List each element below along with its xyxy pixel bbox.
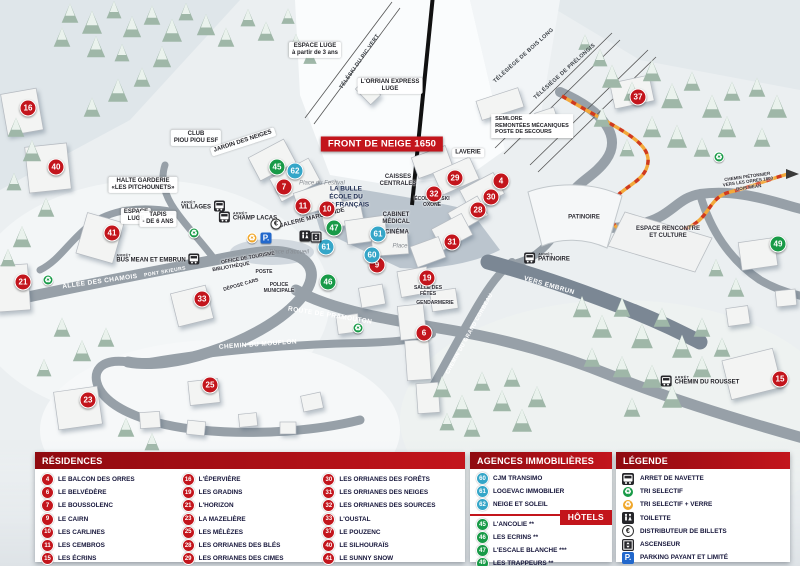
legend-item-label: LE BELVÉDÈRE <box>58 489 107 496</box>
map-marker-40: 40 <box>48 159 65 176</box>
bus-stop-text: ARRÊTPATINOIRE <box>538 253 570 263</box>
map-label: ESPACE LUGE à partir de 3 ans <box>289 42 341 58</box>
map-marker-47: 47 <box>326 220 343 237</box>
map-marker-15: 15 <box>772 371 789 388</box>
panel-agences-hotels: AGENCES IMMOBILIÈRES 60CJM TRANSIMO61LOG… <box>470 452 612 562</box>
recycle-green-icon: ♻ <box>353 323 364 334</box>
bus-stop-chemin-du-rousset: ARRÊTCHEMIN DU ROUSSET <box>661 376 740 387</box>
legend-item-label: LES TRAPPEURS ** <box>493 560 553 566</box>
legend-marker-25: 25 <box>182 526 195 539</box>
legend-item-label: ASCENSEUR <box>640 541 680 548</box>
legend-item: 30LES ORRIANES DES FORÊTS <box>322 473 463 486</box>
legend-marker-28: 28 <box>182 539 195 552</box>
map-label: TÉLÉSIÈGE DE BOIS LONG <box>492 27 555 85</box>
legend-marker-32: 32 <box>322 499 335 512</box>
legend-marker-30: 30 <box>322 473 335 486</box>
map-marker-19: 19 <box>419 270 436 287</box>
resort-map: 1640412133232571110919629323128304371545… <box>0 0 800 566</box>
legend-marker-31: 31 <box>322 486 335 499</box>
legend-marker-7: 7 <box>41 499 54 512</box>
legend-item: €DISTRIBUTEUR DE BILLETS <box>622 525 790 538</box>
map-marker-29: 29 <box>447 170 464 187</box>
bus-stop-bus-mean-et-embrun: ARRÊTBUS MEAN ET EMBRUN <box>116 254 199 265</box>
map-marker-6: 6 <box>416 325 433 342</box>
parking-icon: P. <box>261 233 272 244</box>
legend-item-label: TRI SELECTIF + VERRE <box>640 501 712 508</box>
bus-icon <box>189 254 200 265</box>
legend-marker-61: 61 <box>476 485 489 498</box>
legend-item: ♻TRI SELECTIF <box>622 485 790 498</box>
bus-stop-champ-lacas: ARRÊTCHAMP LACAS <box>219 212 277 223</box>
map-label: CABINET MÉDICAL <box>382 212 409 226</box>
map-label: CLUB PIOU PIOU ESF <box>171 130 221 146</box>
legend-marker-29: 29 <box>182 552 195 565</box>
legend-item-label: LES MÉLÈZES <box>199 529 243 536</box>
bus-icon <box>219 212 230 223</box>
bus-stop-text: ARRÊTBUS MEAN ET EMBRUN <box>116 254 185 264</box>
legend-marker-33: 33 <box>322 513 335 526</box>
bus-icon <box>214 201 225 212</box>
legend-marker-11: 11 <box>41 539 54 552</box>
legend-marker-37: 37 <box>322 526 335 539</box>
legend-item: 41LE SUNNY SNOW <box>322 552 463 565</box>
recycle-yellow-icon: ♻ <box>247 233 258 244</box>
map-label: PATINOIRE <box>568 214 600 221</box>
map-label: TÉLÉSIÈGE DE PRÉLONGIS <box>533 43 597 102</box>
wc-icon <box>622 512 634 524</box>
legend-item: 33L'OUSTAL <box>322 513 463 526</box>
legend-item-label: TRI SELECTIF <box>640 488 683 495</box>
legend-item-label: LE BALCON DES ORRES <box>58 476 135 483</box>
map-label: CHEMIN PIÉTONNIER VERS LES ORRES 1800 BO… <box>722 170 775 193</box>
map-marker-46: 46 <box>320 274 337 291</box>
map-marker-28: 28 <box>470 202 487 219</box>
legend-item: 49LES TRAPPEURS ** <box>476 557 612 566</box>
legend-item-label: DISTRIBUTEUR DE BILLETS <box>640 528 727 535</box>
hotels-divider: HÔTELS <box>470 514 612 516</box>
legend-marker-15: 15 <box>41 552 54 565</box>
legend-item: 6LE BELVÉDÈRE <box>41 486 182 499</box>
legend-item-label: LE SILHOURAÏS <box>339 542 388 549</box>
map-label: HALTE GARDERIE «LES PITCHOUNETS» <box>108 177 177 193</box>
bus-stop-name: PATINOIRE <box>538 257 570 263</box>
map-label: PONT SKIEURS <box>144 265 187 278</box>
legend-marker-47: 47 <box>476 544 489 557</box>
recycle-green-icon: ♻ <box>189 228 200 239</box>
map-label: VERS EMBRUN <box>523 275 576 297</box>
legend-marker-49: 49 <box>476 557 489 566</box>
map-label: POLICE MUNICIPALE <box>264 282 295 294</box>
legend-item: ASCENSEUR <box>622 538 790 551</box>
map-marker-31: 31 <box>444 234 461 251</box>
bus-stop-name: CHEMIN DU ROUSSET <box>675 380 740 386</box>
legend-marker-45: 45 <box>476 518 489 531</box>
legend-item-label: LE POUZENC <box>339 529 380 536</box>
legend-item-label: LES GRADINS <box>199 489 243 496</box>
legend-item: 25LES MÉLÈZES <box>182 526 323 539</box>
map-marker-61: 61 <box>370 226 387 243</box>
map-label: CINÉMA <box>385 229 409 236</box>
bus-stop-text: ARRÊTCHEMIN DU ROUSSET <box>675 376 740 386</box>
bus-icon <box>661 376 672 387</box>
legend-item-label: LOGEVAC IMMOBILIER <box>493 488 564 495</box>
map-label: ESPACE RENCONTRE ET CULTURE <box>636 226 700 240</box>
residences-columns: 4LE BALCON DES ORRES6LE BELVÉDÈRE7LE BOU… <box>35 469 465 565</box>
legend-marker-4: 4 <box>41 473 54 486</box>
legend-item-label: LES ORRIANES DES SOURCES <box>339 502 435 509</box>
map-marker-7: 7 <box>276 179 293 196</box>
map-label: Place <box>392 243 407 250</box>
bus-stop-name: BUS MEAN ET EMBRUN <box>116 258 185 264</box>
recycle-green-icon: ♻ <box>714 152 725 163</box>
legend-item: 29LES ORRIANES DES CIMES <box>182 552 323 565</box>
legend-item: 46LES ECRINS ** <box>476 531 612 544</box>
parking-icon: P. <box>622 552 634 564</box>
legend-item-label: TOILETTE <box>640 515 671 522</box>
map-marker-33: 33 <box>194 291 211 308</box>
legend-item-label: LE SUNNY SNOW <box>339 555 393 562</box>
legend-item-label: L'ÉPERVIÈRE <box>199 476 241 483</box>
map-marker-32: 32 <box>426 186 443 203</box>
legend-item-label: LE BOUSSOLENC <box>58 502 113 509</box>
map-label: L'ORRIAN EXPRESS LUGE <box>358 78 423 94</box>
legend-item-label: PARKING PAYANT ET LIMITÉ <box>640 554 728 561</box>
recycle-yellow-icon: ♻ <box>622 499 634 511</box>
euro-icon: € <box>271 219 282 230</box>
panel-residences-header: RÉSIDENCES <box>35 452 465 469</box>
legend-item: 31LES ORRIANES DES NEIGES <box>322 486 463 499</box>
legend-item-label: L'ANCOLIE ** <box>493 521 534 528</box>
legend-item: 15LES ÉCRINS <box>41 552 182 565</box>
bus-stop-villages: ARRÊTVILLAGES <box>181 201 225 212</box>
map-marker-60: 60 <box>364 247 381 264</box>
legend-marker-62: 62 <box>476 498 489 511</box>
map-marker-62: 62 <box>287 163 304 180</box>
hotels-tab: HÔTELS <box>560 510 612 525</box>
legend-marker-19: 19 <box>182 486 195 499</box>
bus-icon <box>622 473 634 485</box>
legend-item: 40LE SILHOURAÏS <box>322 539 463 552</box>
map-marker-23: 23 <box>80 392 97 409</box>
map-marker-16: 16 <box>20 100 37 117</box>
euro-icon: € <box>622 525 634 537</box>
legend-marker-21: 21 <box>182 499 195 512</box>
legend-item-label: LES ÉCRINS <box>58 555 96 562</box>
map-label: TAPIS - DE 6 ANS <box>139 211 176 227</box>
bus-stop-name: VILLAGES <box>181 205 211 211</box>
legend-item: P.PARKING PAYANT ET LIMITÉ <box>622 551 790 564</box>
legend-item: 19LES GRADINS <box>182 486 323 499</box>
bus-icon <box>524 253 535 264</box>
map-label: DÉPOSE CARS <box>223 277 260 293</box>
legend-item: 32LES ORRIANES DES SOURCES <box>322 499 463 512</box>
legend-item-label: ARRET DE NAVETTE <box>640 475 704 482</box>
legend-item: 47L'ESCALE BLANCHE *** <box>476 544 612 557</box>
elevator-icon <box>311 232 322 243</box>
legend-item-label: L'OUSTAL <box>339 516 370 523</box>
wc-icon <box>300 231 311 242</box>
map-marker-10: 10 <box>319 201 336 218</box>
legend-item-label: LES ORRIANES DES BLÉS <box>199 542 281 549</box>
recycle-green-icon: ♻ <box>622 486 634 498</box>
legend-marker-46: 46 <box>476 531 489 544</box>
map-label: POSTE <box>256 269 273 275</box>
legend-item: 21L'HORIZON <box>182 499 323 512</box>
legend-marker-41: 41 <box>322 552 335 565</box>
legend-item: 7LE BOUSSOLENC <box>41 499 182 512</box>
legend-item-label: CJM TRANSIMO <box>493 475 542 482</box>
legend-marker-9: 9 <box>41 513 54 526</box>
legend-marker-6: 6 <box>41 486 54 499</box>
panel-legende: LÉGENDE ARRET DE NAVETTE♻TRI SELECTIF♻TR… <box>616 452 790 562</box>
legend-item: 10LES CARLINES <box>41 526 182 539</box>
legend-item-label: LES ORRIANES DES FORÊTS <box>339 476 430 483</box>
legend-item: 11LES CEMBROS <box>41 539 182 552</box>
legend-item: 4LE BALCON DES ORRES <box>41 473 182 486</box>
legend-item: 16L'ÉPERVIÈRE <box>182 473 323 486</box>
panel-residences: RÉSIDENCES 4LE BALCON DES ORRES6LE BELVÉ… <box>35 452 465 562</box>
legend-item-label: LES CEMBROS <box>58 542 105 549</box>
map-marker-30: 30 <box>483 189 500 206</box>
map-label: CHEMIN DU MOUFLON <box>219 338 298 351</box>
legend-item-label: LES ORRIANES DES NEIGES <box>339 489 428 496</box>
bus-stop-patinoire: ARRÊTPATINOIRE <box>524 253 570 264</box>
legend-item-label: LA MAZELIÈRE <box>199 516 246 523</box>
legend-item: TOILETTE <box>622 512 790 525</box>
map-marker-41: 41 <box>104 225 121 242</box>
legend-marker-60: 60 <box>476 472 489 485</box>
agences-list: 60CJM TRANSIMO61LOGEVAC IMMOBILIER62NEIG… <box>470 469 612 512</box>
legend-item: ♻TRI SELECTIF + VERRE <box>622 498 790 511</box>
map-label: LAVERIE <box>452 148 484 157</box>
map-marker-37: 37 <box>630 89 647 106</box>
legend-item: 60CJM TRANSIMO <box>476 472 612 485</box>
legend-item-label: LES ORRIANES DES CIMES <box>199 555 284 562</box>
map-label: CAISSES CENTRALES <box>380 174 417 188</box>
legend-marker-16: 16 <box>182 473 195 486</box>
panel-legende-header: LÉGENDE <box>616 452 790 469</box>
map-marker-25: 25 <box>202 377 219 394</box>
legend-marker-10: 10 <box>41 526 54 539</box>
legend-item: 9LE CAIRN <box>41 513 182 526</box>
map-label: GENDARMERIE <box>416 300 454 306</box>
legende-list: ARRET DE NAVETTE♻TRI SELECTIF♻TRI SELECT… <box>616 469 790 564</box>
legend-item: ARRET DE NAVETTE <box>622 472 790 485</box>
residences-column: 30LES ORRIANES DES FORÊTS31LES ORRIANES … <box>322 473 463 565</box>
recycle-green-icon: ♻ <box>43 275 54 286</box>
front-de-neige-banner: FRONT DE NEIGE 1650 <box>321 137 443 152</box>
map-marker-4: 4 <box>493 173 510 190</box>
map-label: SALLE DES FÊTES <box>414 285 442 297</box>
residences-column: 16L'ÉPERVIÈRE19LES GRADINS21L'HORIZON23L… <box>182 473 323 565</box>
legend-item-label: LES CARLINES <box>58 529 105 536</box>
legend-marker-23: 23 <box>182 513 195 526</box>
legend-item-label: L'ESCALE BLANCHE *** <box>493 547 567 554</box>
legend-item-label: LE CAIRN <box>58 516 88 523</box>
legend-item-label: L'HORIZON <box>199 502 234 509</box>
residences-column: 4LE BALCON DES ORRES6LE BELVÉDÈRE7LE BOU… <box>41 473 182 565</box>
bus-stop-text: ARRÊTVILLAGES <box>181 201 211 211</box>
map-marker-45: 45 <box>269 159 286 176</box>
map-marker-49: 49 <box>770 236 787 253</box>
legend-marker-40: 40 <box>322 539 335 552</box>
elevator-icon <box>622 539 634 551</box>
legend-item: 37LE POUZENC <box>322 526 463 539</box>
legend-item: 28LES ORRIANES DES BLÉS <box>182 539 323 552</box>
map-label: SEMLORE REMONTÉES MÉCANIQUES POSTE DE SE… <box>491 114 573 138</box>
legend-item: 61LOGEVAC IMMOBILIER <box>476 485 612 498</box>
map-marker-21: 21 <box>15 274 32 291</box>
map-label: ALLÉE DES CHAMOIS <box>62 273 138 291</box>
map-label: Place d'accueil <box>269 249 309 256</box>
legend-item-label: LES ECRINS ** <box>493 534 538 541</box>
legend-item-label: NEIGE ET SOLEIL <box>493 501 548 508</box>
map-marker-11: 11 <box>295 198 312 215</box>
legend-item: 23LA MAZELIÈRE <box>182 513 323 526</box>
panel-agences-header: AGENCES IMMOBILIÈRES <box>470 452 612 469</box>
